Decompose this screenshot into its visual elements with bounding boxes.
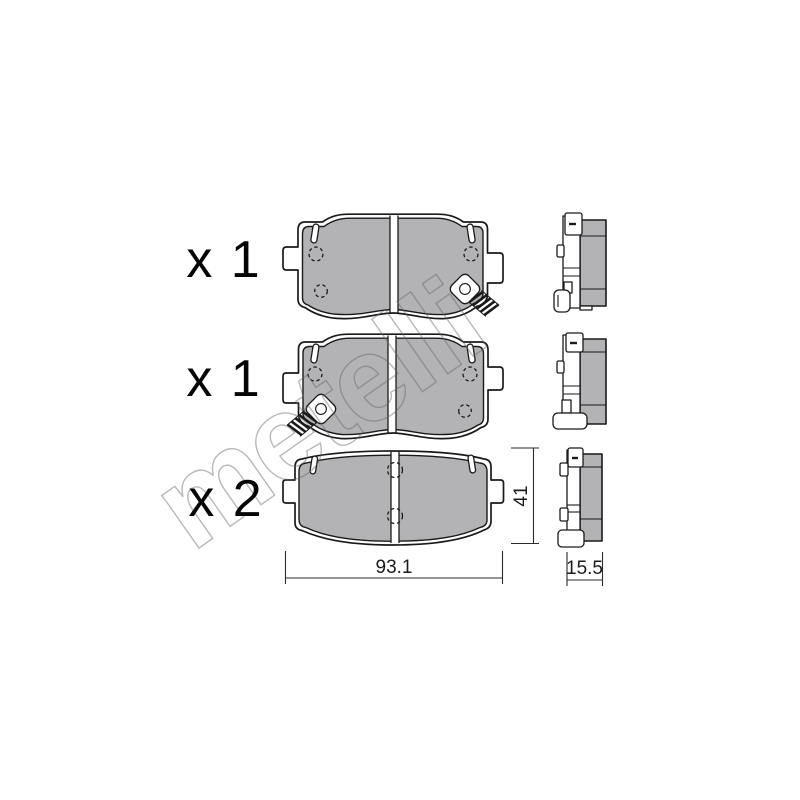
- dimension-pad-width: 93.1: [286, 551, 503, 584]
- dimension-pad-thickness: 15.5: [566, 552, 603, 586]
- brake-pad-side-view-2: [553, 333, 606, 429]
- quantity-label-row-2: x 1: [186, 350, 261, 408]
- brake-pad-technical-diagram: metelli x 1 x 1 x 2 93.1 41 15.5: [0, 0, 800, 800]
- dimension-pad-height-value: 41: [511, 485, 532, 506]
- dimension-pad-thickness-value: 15.5: [566, 558, 603, 579]
- brake-pad-side-view-1: [554, 213, 606, 312]
- brake-pad-side-view-3: [558, 448, 602, 547]
- dimension-pad-height: 41: [511, 448, 539, 544]
- diagram-svg: metelli x 1 x 1 x 2 93.1 41 15.5: [0, 0, 800, 800]
- quantity-label-row-1: x 1: [186, 231, 261, 289]
- quantity-label-row-3: x 2: [188, 470, 263, 528]
- retaining-clip: [558, 530, 584, 547]
- dimension-pad-width-value: 93.1: [376, 557, 413, 578]
